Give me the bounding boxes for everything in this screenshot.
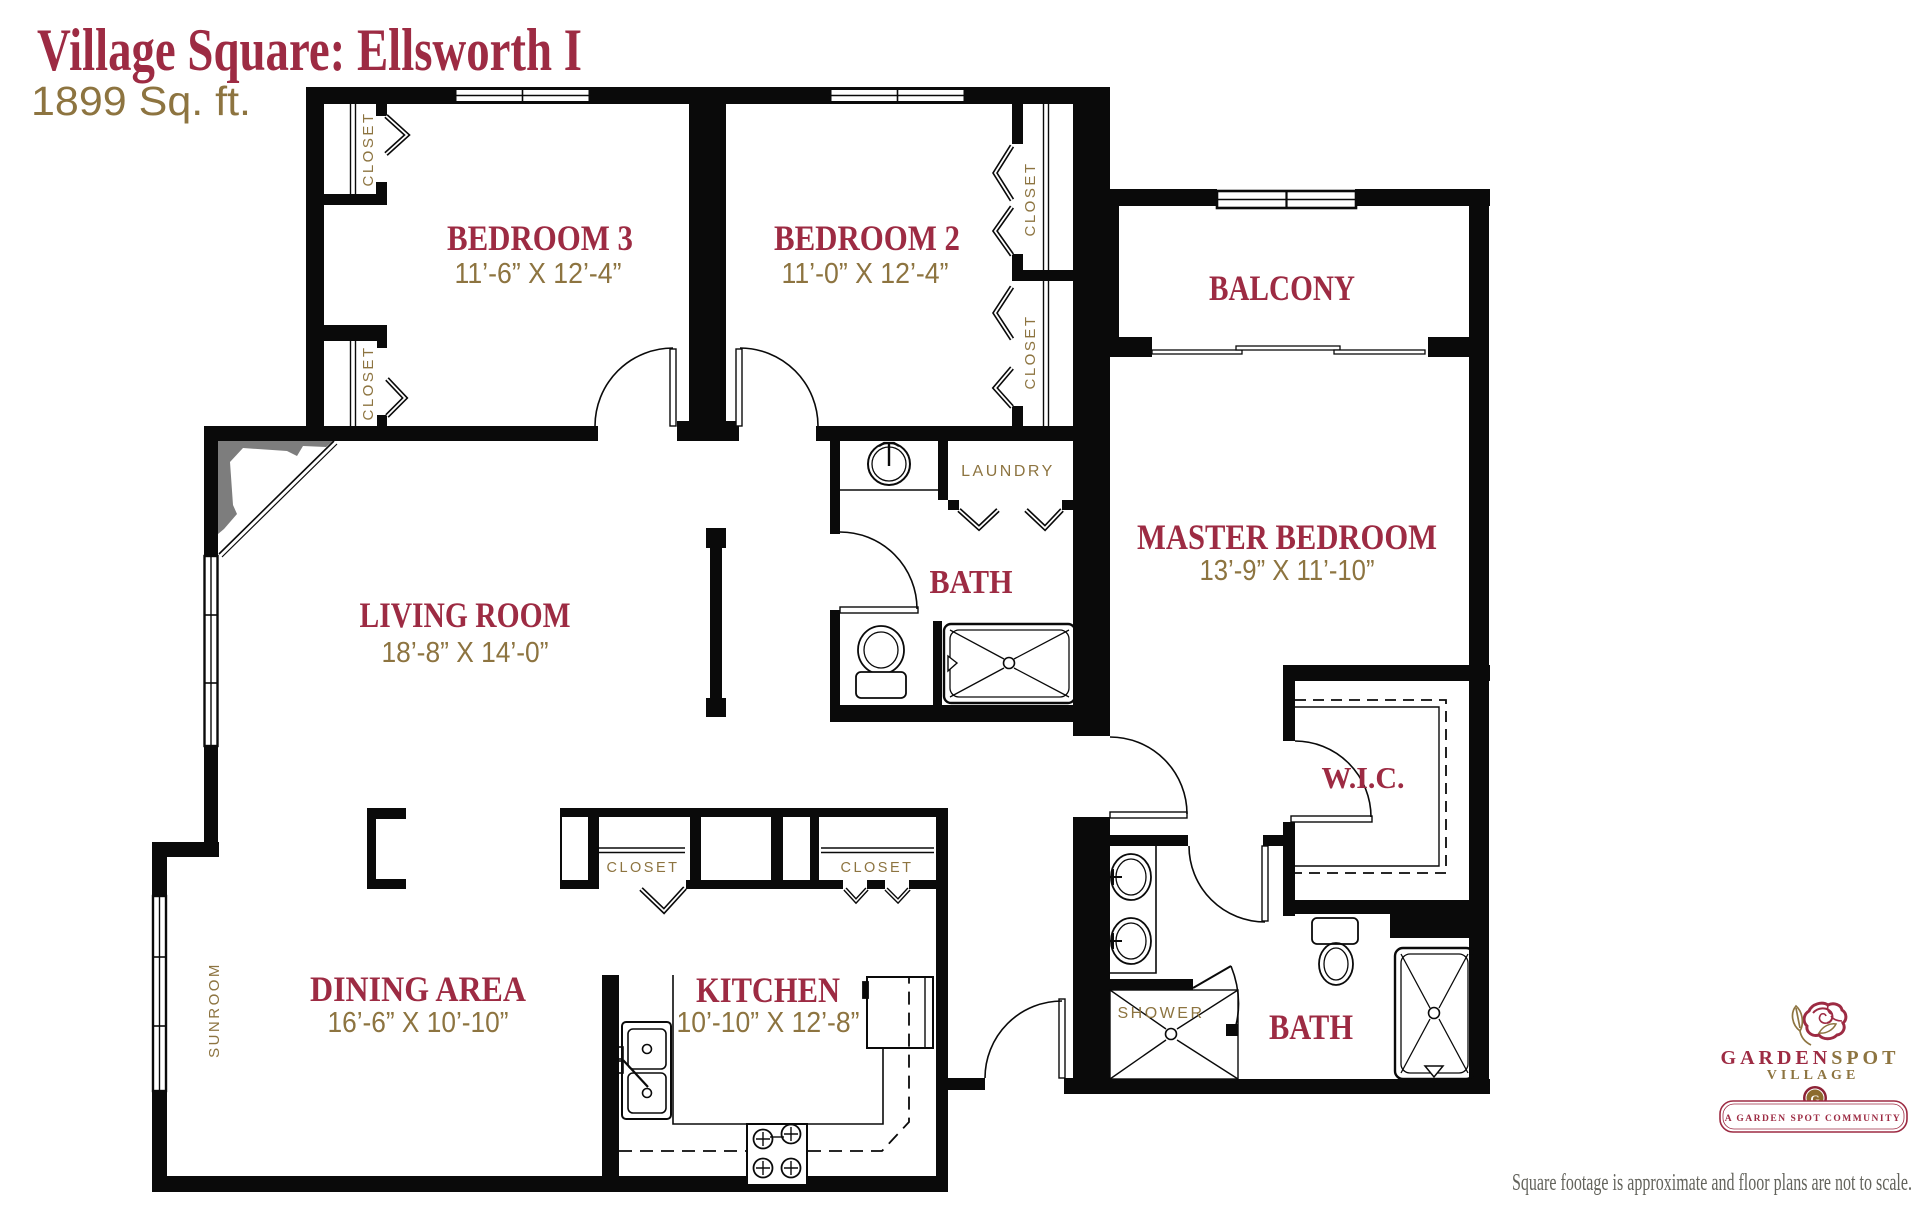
svg-text:VILLAGE: VILLAGE	[1767, 1068, 1860, 1083]
svg-text:SHOWER: SHOWER	[1118, 1005, 1205, 1022]
svg-text:18’-8” X 14’-0”: 18’-8” X 14’-0”	[382, 637, 549, 669]
svg-text:Village Square: Ellsworth I: Village Square: Ellsworth I	[37, 17, 582, 83]
svg-text:SUNROOM: SUNROOM	[206, 962, 223, 1058]
svg-text:GARDENSPOT: GARDENSPOT	[1721, 1047, 1900, 1069]
svg-text:1899 Sq. ft.: 1899 Sq. ft.	[31, 78, 251, 124]
svg-text:CLOSET: CLOSET	[360, 345, 377, 420]
svg-text:BEDROOM 2: BEDROOM 2	[774, 218, 960, 258]
svg-text:BATH: BATH	[930, 564, 1013, 601]
svg-text:13’-9” X 11’-10”: 13’-9” X 11’-10”	[1200, 555, 1375, 587]
svg-text:MASTER BEDROOM: MASTER BEDROOM	[1137, 517, 1437, 557]
svg-text:16’-6” X 10’-10”: 16’-6” X 10’-10”	[328, 1007, 509, 1039]
svg-text:KITCHEN: KITCHEN	[696, 970, 840, 1010]
svg-text:BALCONY: BALCONY	[1209, 268, 1355, 308]
svg-text:BEDROOM 3: BEDROOM 3	[447, 218, 633, 258]
svg-text:LAUNDRY: LAUNDRY	[961, 463, 1055, 480]
svg-text:A GARDEN SPOT COMMUNITY: A GARDEN SPOT COMMUNITY	[1725, 1114, 1902, 1124]
svg-text:10’-10” X 12’-8”: 10’-10” X 12’-8”	[677, 1007, 860, 1039]
svg-text:CLOSET: CLOSET	[360, 111, 377, 186]
svg-text:W.I.C.: W.I.C.	[1322, 760, 1405, 795]
svg-text:BATH: BATH	[1269, 1007, 1353, 1047]
svg-text:LIVING ROOM: LIVING ROOM	[360, 595, 571, 635]
svg-text:CLOSET: CLOSET	[606, 860, 679, 876]
svg-text:CLOSET: CLOSET	[1022, 161, 1039, 236]
svg-text:CLOSET: CLOSET	[1022, 314, 1039, 389]
svg-text:11’-6” X 12’-4”: 11’-6” X 12’-4”	[455, 258, 622, 290]
svg-text:Square footage is approximate: Square footage is approximate and floor …	[1512, 1170, 1912, 1196]
svg-text:DINING AREA: DINING AREA	[310, 969, 526, 1009]
svg-text:CLOSET: CLOSET	[840, 860, 913, 876]
svg-text:11’-0” X 12’-4”: 11’-0” X 12’-4”	[782, 258, 949, 290]
